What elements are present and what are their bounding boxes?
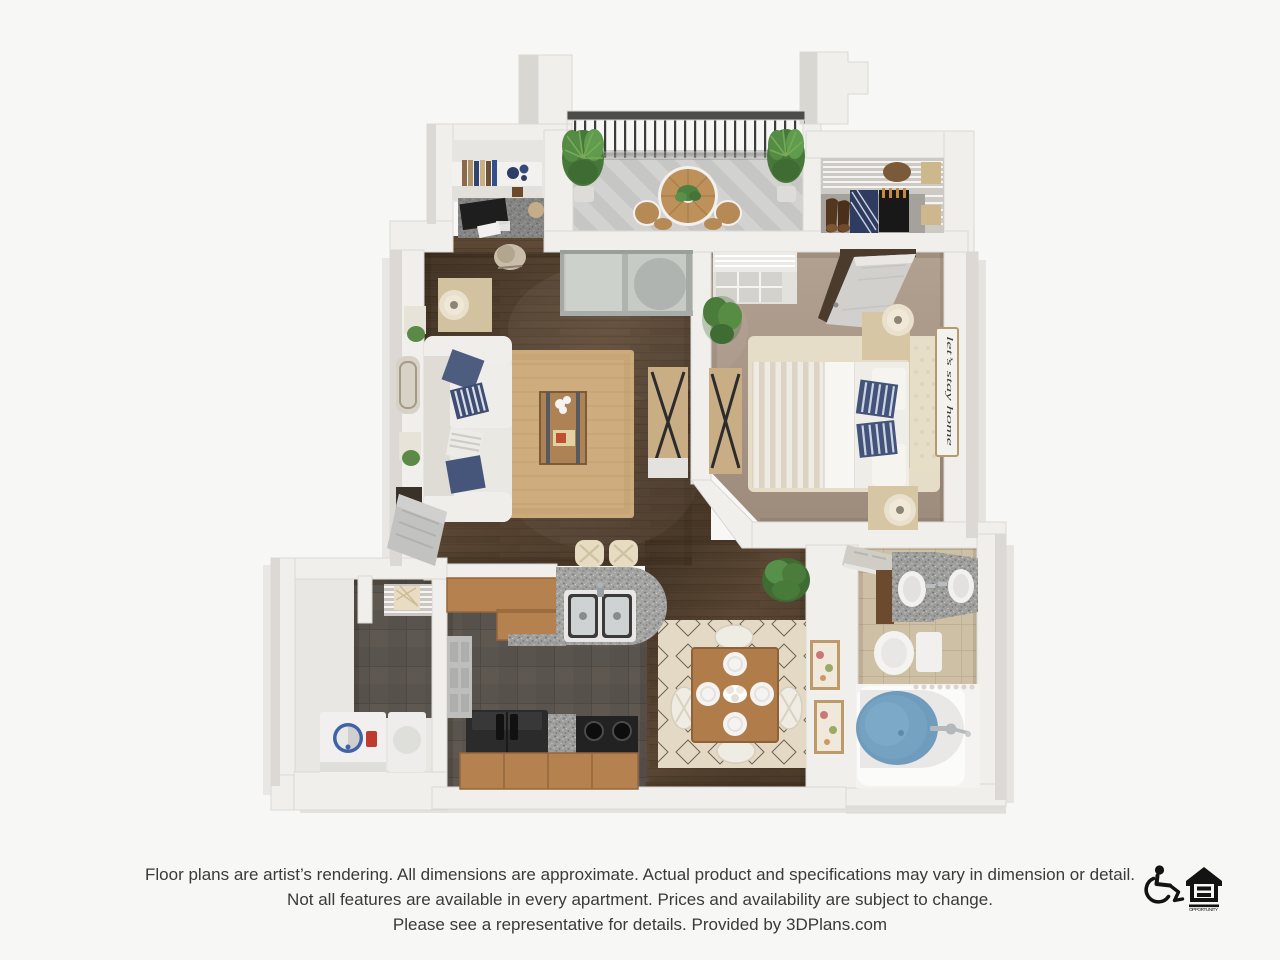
- svg-text:let’s stay home: let’s stay home: [945, 336, 955, 446]
- svg-text:OPPORTUNITY: OPPORTUNITY: [1189, 907, 1218, 912]
